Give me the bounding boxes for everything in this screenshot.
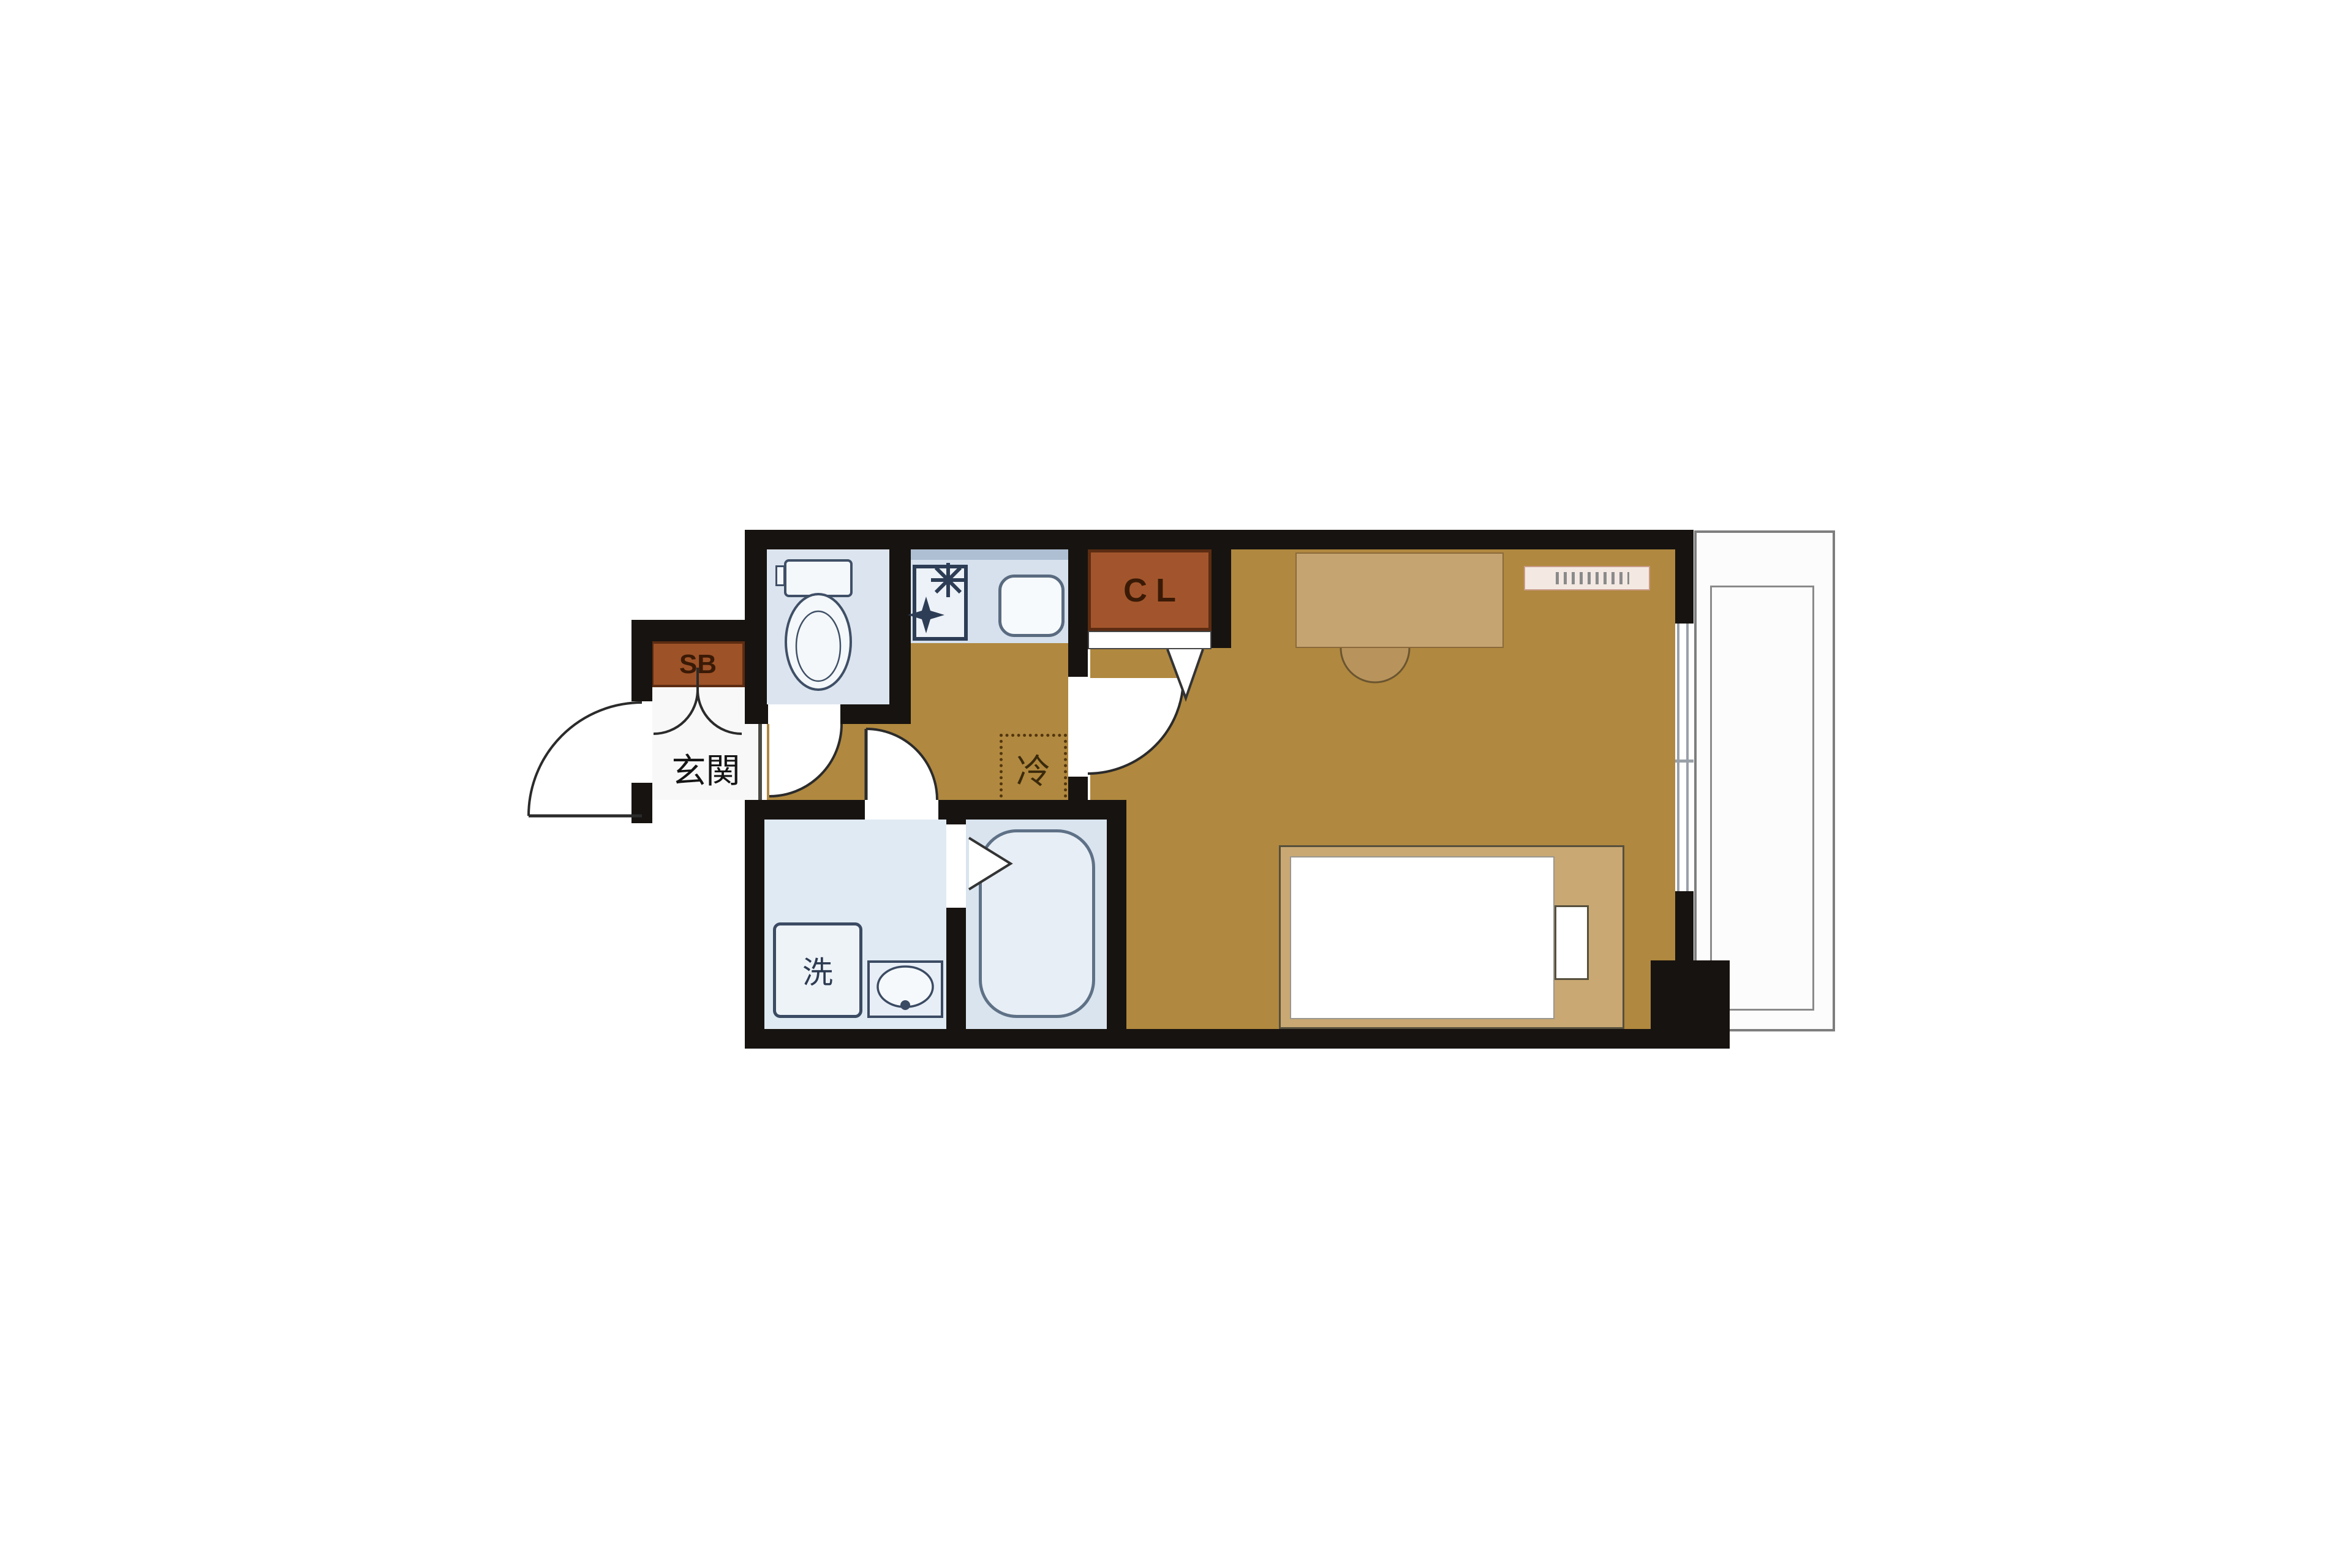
chair-icon bbox=[1341, 648, 1409, 682]
toilet-door-arc bbox=[769, 724, 842, 796]
closet-label: CL bbox=[1088, 549, 1212, 631]
stove-burner-icons bbox=[908, 563, 965, 633]
washbasin-icon bbox=[878, 967, 933, 1010]
entrance-label: 玄関 bbox=[651, 742, 761, 794]
floor-plan: SB CL 玄関 冷 洗 bbox=[0, 0, 2352, 1568]
entrance-door-arc bbox=[529, 703, 642, 816]
bathroom-fold-v bbox=[969, 838, 1011, 889]
washroom-door-arc bbox=[866, 729, 937, 800]
plan-symbols-layer bbox=[0, 0, 2352, 1568]
washing-machine-label: 洗 bbox=[773, 922, 862, 1018]
refrigerator-label: 冷 bbox=[1000, 734, 1067, 804]
shoe-box-label: SB bbox=[651, 641, 745, 687]
toilet-bowl-icon bbox=[786, 594, 851, 690]
main-room-door-arc bbox=[1088, 678, 1183, 774]
